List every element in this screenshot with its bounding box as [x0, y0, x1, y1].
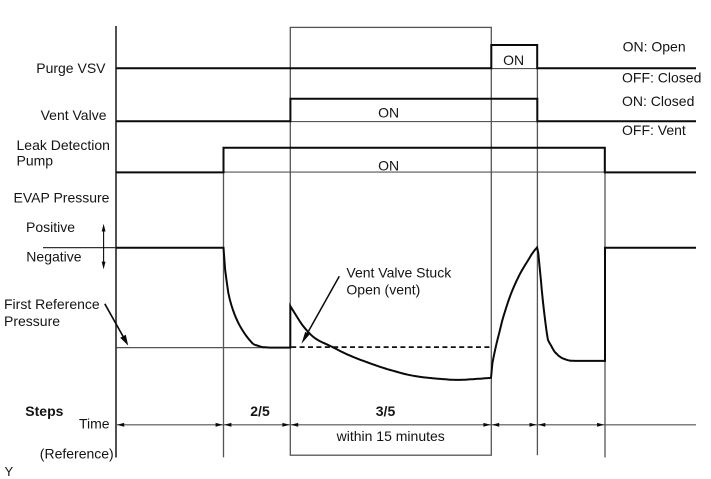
svg-text:Purge VSV: Purge VSV: [36, 60, 106, 76]
svg-text:Vent Valve: Vent Valve: [41, 107, 107, 123]
svg-text:Steps: Steps: [25, 403, 63, 419]
svg-text:ON: ON: [378, 158, 399, 174]
svg-text:Negative: Negative: [26, 248, 81, 264]
svg-text:2/5: 2/5: [250, 403, 270, 419]
svg-text:Time: Time: [79, 416, 110, 432]
svg-text:Y: Y: [5, 464, 14, 479]
svg-text:ON: ON: [503, 52, 524, 68]
svg-text:3/5: 3/5: [376, 403, 396, 419]
svg-text:Leak Detection: Leak Detection: [17, 137, 110, 153]
svg-text:OFF: Closed: OFF: Closed: [622, 70, 701, 86]
svg-text:Positive: Positive: [26, 219, 75, 235]
svg-text:OFF: Vent: OFF: Vent: [622, 122, 686, 138]
svg-text:within 15 minutes: within 15 minutes: [336, 428, 445, 444]
svg-text:ON: ON: [378, 105, 399, 121]
svg-text:ON: Closed: ON: Closed: [622, 93, 694, 109]
svg-text:EVAP Pressure: EVAP Pressure: [14, 189, 110, 205]
svg-text:(Reference): (Reference): [40, 446, 114, 462]
svg-text:Vent Valve Stuck: Vent Valve Stuck: [346, 265, 452, 281]
svg-text:First Reference: First Reference: [4, 296, 100, 312]
svg-text:Pressure: Pressure: [4, 313, 60, 329]
svg-text:Pump: Pump: [17, 153, 54, 169]
svg-text:ON: Open: ON: Open: [623, 38, 686, 54]
svg-text:Open (vent): Open (vent): [346, 282, 420, 298]
